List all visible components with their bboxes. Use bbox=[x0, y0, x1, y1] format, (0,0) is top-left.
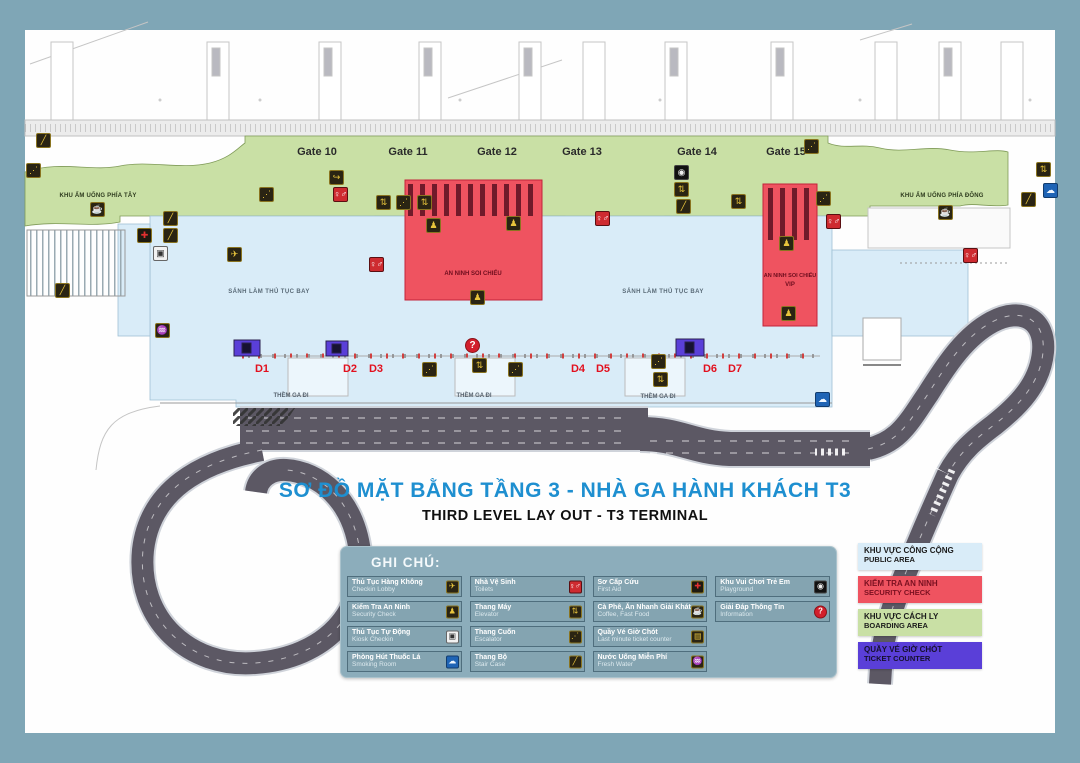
playground-icon: ◉ bbox=[814, 580, 827, 593]
legend-item-ticket: Quầy Vé Giờ ChótLast minute ticket count… bbox=[593, 626, 708, 647]
area-legend-label-en: PUBLIC AREA bbox=[864, 555, 976, 564]
checkin-hall-label-west: SẢNH LÀM THỦ TỤC BAY bbox=[228, 289, 309, 295]
escalator-icon: ⋰ bbox=[422, 362, 437, 377]
elevator-icon: ⇅ bbox=[674, 182, 689, 197]
toilets-icon: ♀♂ bbox=[333, 187, 348, 202]
security-icon: ♟ bbox=[446, 605, 459, 618]
vip-security-label-line1: AN NINH SOI CHIẾU bbox=[764, 273, 817, 279]
kiosk-icon: ▣ bbox=[153, 246, 168, 261]
toilets-icon: ♀♂ bbox=[369, 257, 384, 272]
area-legend-label-en: SECURITY CHECK bbox=[864, 588, 976, 597]
legend-item-label-en: Playground bbox=[720, 586, 812, 593]
door-label-d3: D3 bbox=[369, 363, 383, 375]
vip-security-label-line2: VIP bbox=[785, 282, 795, 288]
checkin-icon: ✈ bbox=[227, 247, 242, 262]
legend-item-label-en: Fresh Water bbox=[598, 661, 690, 668]
coffee-icon: ☕ bbox=[90, 202, 105, 217]
security-icon: ♟ bbox=[506, 216, 521, 231]
terminal-map-page: Gate 10 Gate 11 Gate 12 Gate 13 Gate 14 … bbox=[0, 0, 1080, 763]
kiosk-icon: ▣ bbox=[446, 630, 459, 643]
elevator-icon: ⇅ bbox=[569, 605, 582, 618]
legend-item-firstaid: Sơ Cấp CứuFirst Aid✚ bbox=[593, 576, 708, 597]
water-icon: ♒ bbox=[155, 323, 170, 338]
door-label-d5: D5 bbox=[596, 363, 610, 375]
legend-item-label-en: Information bbox=[720, 611, 812, 618]
legend-item-label-en: Security Check bbox=[352, 611, 444, 618]
door-label-d2: D2 bbox=[343, 363, 357, 375]
legend-item-label-vi: Quầy Vé Giờ Chót bbox=[598, 629, 690, 636]
firstaid-icon: ✚ bbox=[137, 228, 152, 243]
legend-item-label-vi: Thủ Tục Hàng Không bbox=[352, 579, 444, 586]
legend-item-label-vi: Thang Cuốn bbox=[475, 629, 567, 636]
stairs-icon: ╱ bbox=[569, 655, 582, 668]
door-label-d4: D4 bbox=[571, 363, 585, 375]
departure-curb-label-3: THỀM GA ĐI bbox=[640, 394, 675, 400]
legend-item-label-en: Checkin Lobby bbox=[352, 586, 444, 593]
legend-item-label-en: Smoking Room bbox=[352, 661, 444, 668]
title-block: SƠ ĐỒ MẶT BẰNG TẦNG 3 - NHÀ GA HÀNH KHÁC… bbox=[140, 479, 990, 524]
stairs-icon: ╱ bbox=[676, 199, 691, 214]
area-legend-label-en: TICKET COUNTER bbox=[864, 654, 976, 663]
legend-item-info: Giải Đáp Thông TinInformation? bbox=[715, 601, 830, 622]
legend-item-label-vi: Nhà Vệ Sinh bbox=[475, 579, 567, 586]
smoking-icon: ☁ bbox=[1043, 183, 1058, 198]
legend-item-smoking: Phòng Hút Thuốc LáSmoking Room☁ bbox=[347, 651, 462, 672]
departure-curb-label-2: THỀM GA ĐI bbox=[456, 393, 491, 399]
legend-item-label-en: First Aid bbox=[598, 586, 690, 593]
stairs-icon: ╱ bbox=[163, 228, 178, 243]
area-legend-label-en: BOARDING AREA bbox=[864, 621, 976, 630]
door-label-d1: D1 bbox=[255, 363, 269, 375]
toilets-icon: ♀♂ bbox=[595, 211, 610, 226]
legend-item-label-en: Coffee, Fast Food bbox=[598, 611, 690, 618]
legend-item-label-vi: Thang Máy bbox=[475, 604, 567, 611]
legend-item-label-vi: Cà Phê, Ăn Nhanh Giải Khát bbox=[598, 604, 690, 611]
escalator-icon: ⋰ bbox=[508, 362, 523, 377]
security-icon: ♟ bbox=[779, 236, 794, 251]
legend-item-label-vi: Thủ Tục Tự Động bbox=[352, 629, 444, 636]
legend-item-escalator: Thang CuốnEscalator⋰ bbox=[470, 626, 585, 647]
legend-item-security: Kiểm Tra An NinhSecurity Check♟ bbox=[347, 601, 462, 622]
legend-box: GHI CHÚ: Thủ Tục Hàng KhôngCheckin Lobby… bbox=[340, 546, 837, 678]
legend-item-playground: Khu Vui Chơi Trẻ EmPlayground◉ bbox=[715, 576, 830, 597]
legend-item-kiosk: Thủ Tục Tự ĐộngKiosk Checkin▣ bbox=[347, 626, 462, 647]
escalator-icon: ⋰ bbox=[651, 354, 666, 369]
area-legend-box-2: KHU VỰC CÁCH LYBOARDING AREA bbox=[858, 609, 982, 636]
legend-item-label-en: Elevator bbox=[475, 611, 567, 618]
elevator-icon: ⇅ bbox=[376, 195, 391, 210]
gate-label-14: Gate 14 bbox=[677, 146, 717, 158]
legend-item-label-vi: Kiểm Tra An Ninh bbox=[352, 604, 444, 611]
area-legend-label-vi: KIỂM TRA AN NINH bbox=[864, 579, 976, 588]
smoking-icon: ☁ bbox=[446, 655, 459, 668]
legend-item-toilets: Nhà Vệ SinhToilets♀♂ bbox=[470, 576, 585, 597]
coffee-icon: ☕ bbox=[691, 605, 704, 618]
stairs-icon: ╱ bbox=[163, 211, 178, 226]
toilets-icon: ♀♂ bbox=[963, 248, 978, 263]
legend-item-label-en: Stair Case bbox=[475, 661, 567, 668]
area-color-legend: KHU VỰC CÔNG CỘNGPUBLIC AREAKIỂM TRA AN … bbox=[858, 543, 982, 675]
gate-label-12: Gate 12 bbox=[477, 146, 517, 158]
security-screening-label: AN NINH SOI CHIẾU bbox=[444, 271, 501, 277]
legend-item-label-en: Escalator bbox=[475, 636, 567, 643]
stairs-icon: ╱ bbox=[55, 283, 70, 298]
arrow-icon: ↪ bbox=[329, 170, 344, 185]
legend-items-grid: Thủ Tục Hàng KhôngCheckin Lobby✈Nhà Vệ S… bbox=[347, 576, 830, 672]
gate-label-10: Gate 10 bbox=[297, 146, 337, 158]
escalator-icon: ⋰ bbox=[26, 163, 41, 178]
gate-label-13: Gate 13 bbox=[562, 146, 602, 158]
legend-item-stairs: Thang BộStair Case╱ bbox=[470, 651, 585, 672]
area-legend-label-vi: QUẦY VÉ GIỜ CHÓT bbox=[864, 645, 976, 654]
elevator-icon: ⇅ bbox=[417, 195, 432, 210]
area-legend-box-0: KHU VỰC CÔNG CỘNGPUBLIC AREA bbox=[858, 543, 982, 570]
elevator-icon: ⇅ bbox=[1036, 162, 1051, 177]
legend-item-label-vi: Sơ Cấp Cứu bbox=[598, 579, 690, 586]
stairs-icon: ╱ bbox=[1021, 192, 1036, 207]
page-title-english: THIRD LEVEL LAY OUT - T3 TERMINAL bbox=[140, 508, 990, 524]
security-icon: ♟ bbox=[781, 306, 796, 321]
door-label-d7: D7 bbox=[728, 363, 742, 375]
legend-item-label-vi: Khu Vui Chơi Trẻ Em bbox=[720, 579, 812, 586]
area-legend-label-vi: KHU VỰC CÁCH LY bbox=[864, 612, 976, 621]
coffee-icon: ☕ bbox=[938, 205, 953, 220]
security-icon: ♟ bbox=[470, 290, 485, 305]
elevator-icon: ⇅ bbox=[653, 372, 668, 387]
legend-item-label-vi: Thang Bộ bbox=[475, 654, 567, 661]
legend-item-label-vi: Nước Uống Miễn Phí bbox=[598, 654, 690, 661]
escalator-icon: ⋰ bbox=[804, 139, 819, 154]
area-legend-box-1: KIỂM TRA AN NINHSECURITY CHECK bbox=[858, 576, 982, 603]
west-food-court-label: KHU ẨM UỐNG PHÍA TÂY bbox=[59, 193, 136, 199]
info-icon: ? bbox=[814, 605, 827, 618]
escalator-icon: ⋰ bbox=[569, 630, 582, 643]
escalator-icon: ⋰ bbox=[396, 195, 411, 210]
legend-item-label-vi: Phòng Hút Thuốc Lá bbox=[352, 654, 444, 661]
area-legend-box-3: QUẦY VÉ GIỜ CHÓTTICKET COUNTER bbox=[858, 642, 982, 669]
escalator-icon: ⋰ bbox=[816, 191, 831, 206]
escalator-icon: ⋰ bbox=[259, 187, 274, 202]
toilets-icon: ♀♂ bbox=[826, 214, 841, 229]
checkin-icon: ✈ bbox=[446, 580, 459, 593]
legend-item-coffee: Cà Phê, Ăn Nhanh Giải KhátCoffee, Fast F… bbox=[593, 601, 708, 622]
departure-curb-label-1: THỀM GA ĐI bbox=[273, 393, 308, 399]
info-icon: ? bbox=[465, 338, 480, 353]
ticket-icon: ▤ bbox=[691, 630, 704, 643]
playground-icon: ◉ bbox=[674, 165, 689, 180]
door-label-d6: D6 bbox=[703, 363, 717, 375]
toilets-icon: ♀♂ bbox=[569, 580, 582, 593]
legend-item-label-en: Last minute ticket counter bbox=[598, 636, 690, 643]
smoking-icon: ☁ bbox=[815, 392, 830, 407]
legend-item-elevator: Thang MáyElevator⇅ bbox=[470, 601, 585, 622]
gate-label-11: Gate 11 bbox=[388, 146, 427, 158]
legend-title: GHI CHÚ: bbox=[371, 555, 441, 570]
stairs-icon: ╱ bbox=[36, 133, 51, 148]
gate-label-15: Gate 15 bbox=[766, 146, 806, 158]
elevator-icon: ⇅ bbox=[472, 358, 487, 373]
security-icon: ♟ bbox=[426, 218, 441, 233]
firstaid-icon: ✚ bbox=[691, 580, 704, 593]
checkin-hall-label-east: SẢNH LÀM THỦ TỤC BAY bbox=[622, 289, 703, 295]
east-food-court-label: KHU ẨM UỐNG PHÍA ĐÔNG bbox=[900, 193, 983, 199]
page-title-vietnamese: SƠ ĐỒ MẶT BẰNG TẦNG 3 - NHÀ GA HÀNH KHÁC… bbox=[140, 479, 990, 503]
legend-item-checkin: Thủ Tục Hàng KhôngCheckin Lobby✈ bbox=[347, 576, 462, 597]
area-legend-label-vi: KHU VỰC CÔNG CỘNG bbox=[864, 546, 976, 555]
legend-item-label-en: Toilets bbox=[475, 586, 567, 593]
legend-item-water: Nước Uống Miễn PhíFresh Water♒ bbox=[593, 651, 708, 672]
legend-item-label-vi: Giải Đáp Thông Tin bbox=[720, 604, 812, 611]
elevator-icon: ⇅ bbox=[731, 194, 746, 209]
legend-item-label-en: Kiosk Checkin bbox=[352, 636, 444, 643]
water-icon: ♒ bbox=[691, 655, 704, 668]
